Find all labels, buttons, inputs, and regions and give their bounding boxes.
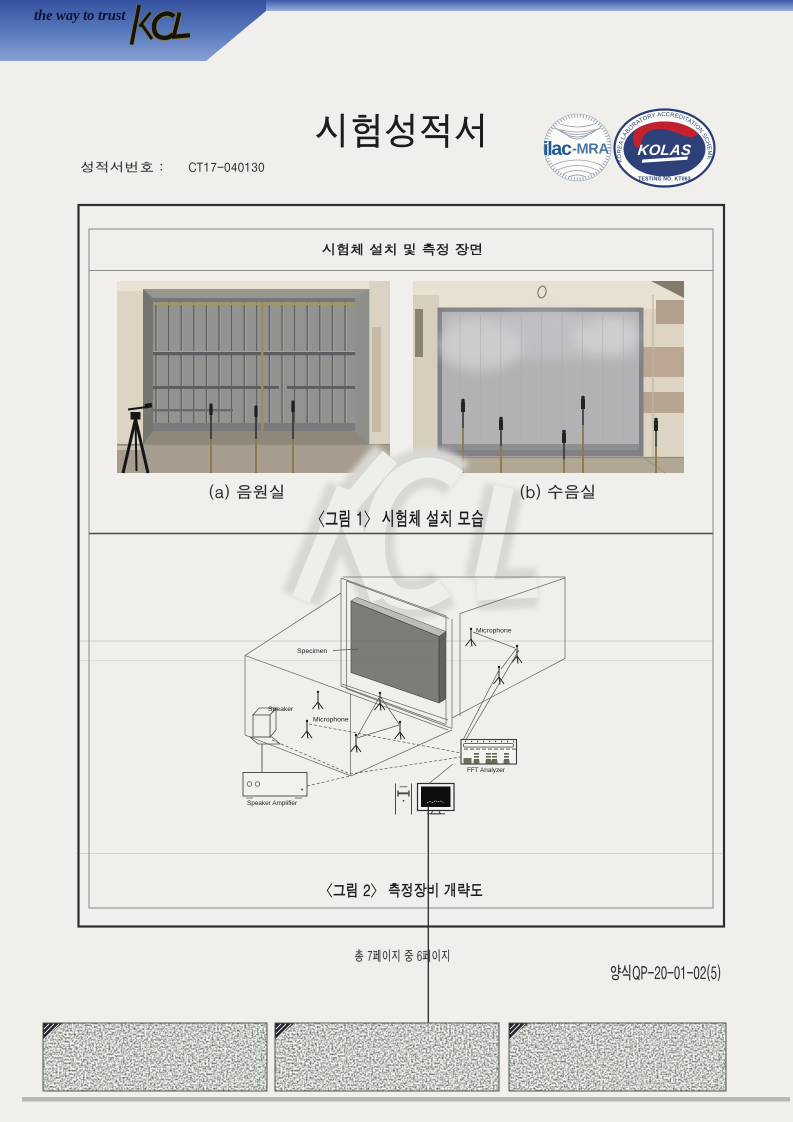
svg-text:FFT Analyzer: FFT Analyzer xyxy=(467,767,506,774)
svg-text:ilac: ilac xyxy=(543,138,572,160)
svg-text:Speaker Amplifier: Speaker Amplifier xyxy=(247,800,298,807)
svg-text:Speaker: Speaker xyxy=(268,706,294,713)
svg-text:-MRA: -MRA xyxy=(572,142,609,158)
svg-text:the way to trust: the way to trust xyxy=(34,8,126,24)
svg-text:Microphone: Microphone xyxy=(313,717,349,724)
svg-text:KOLAS: KOLAS xyxy=(637,142,692,159)
svg-text:TESTING NO. KT063: TESTING NO. KT063 xyxy=(638,177,691,183)
svg-text:Specimen: Specimen xyxy=(297,648,327,655)
svg-text:Microphone: Microphone xyxy=(476,628,512,635)
